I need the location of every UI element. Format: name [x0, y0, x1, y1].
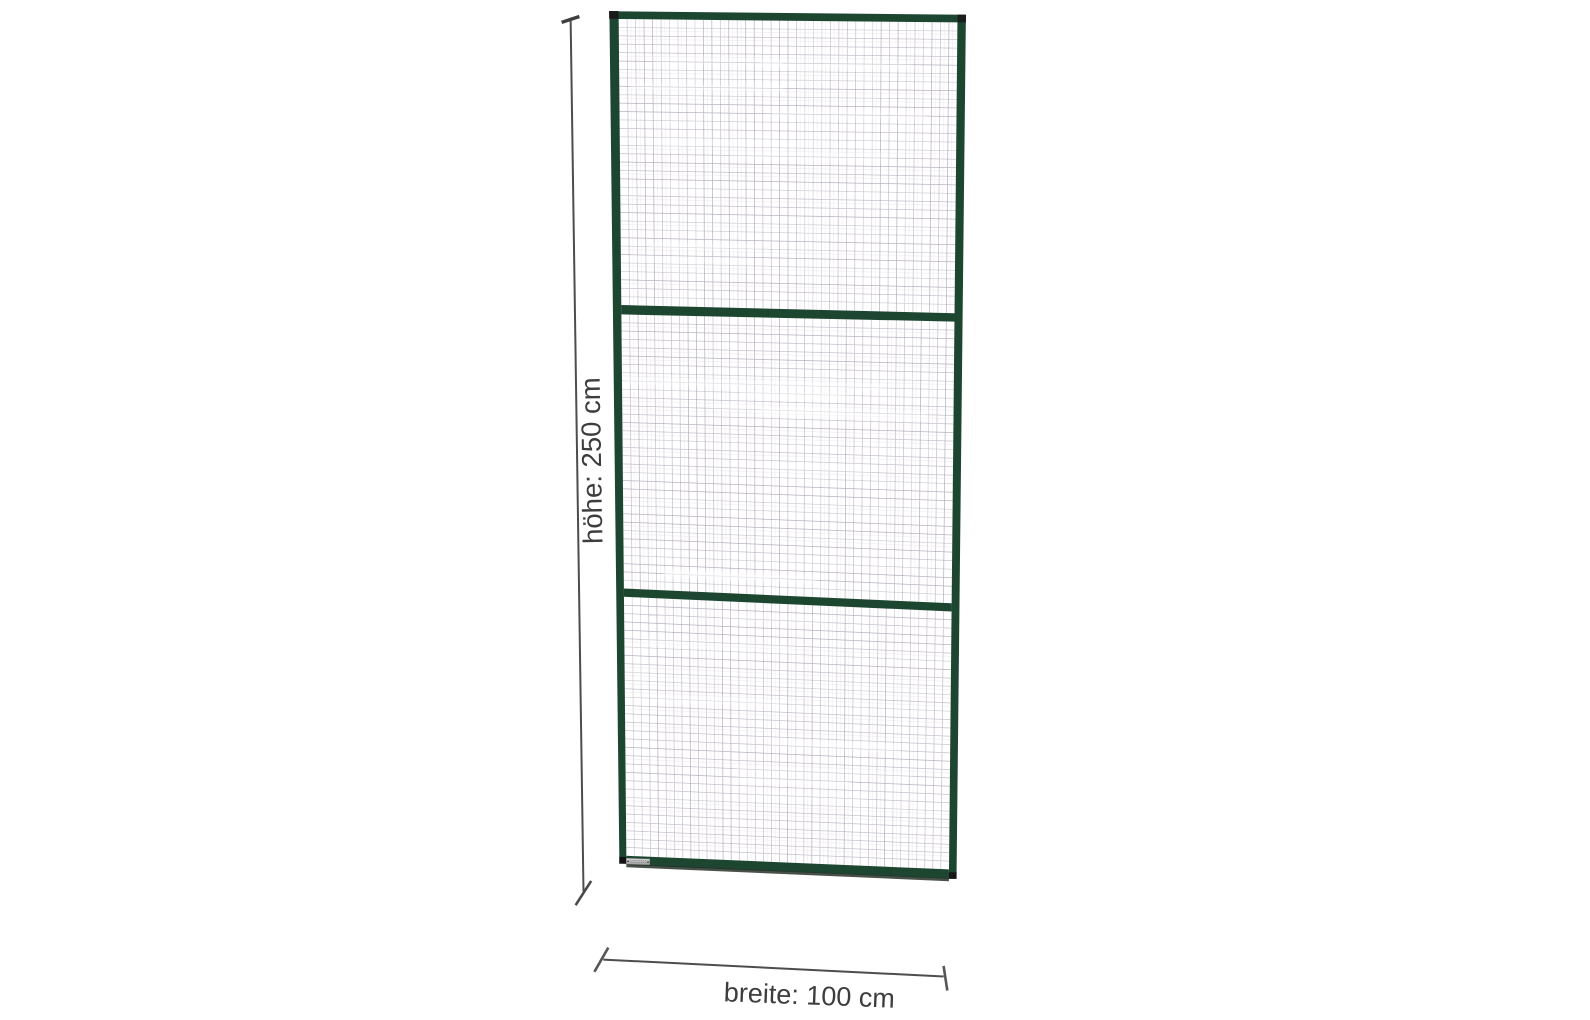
svg-text:höhe: 250 cm: höhe: 250 cm — [575, 377, 609, 544]
